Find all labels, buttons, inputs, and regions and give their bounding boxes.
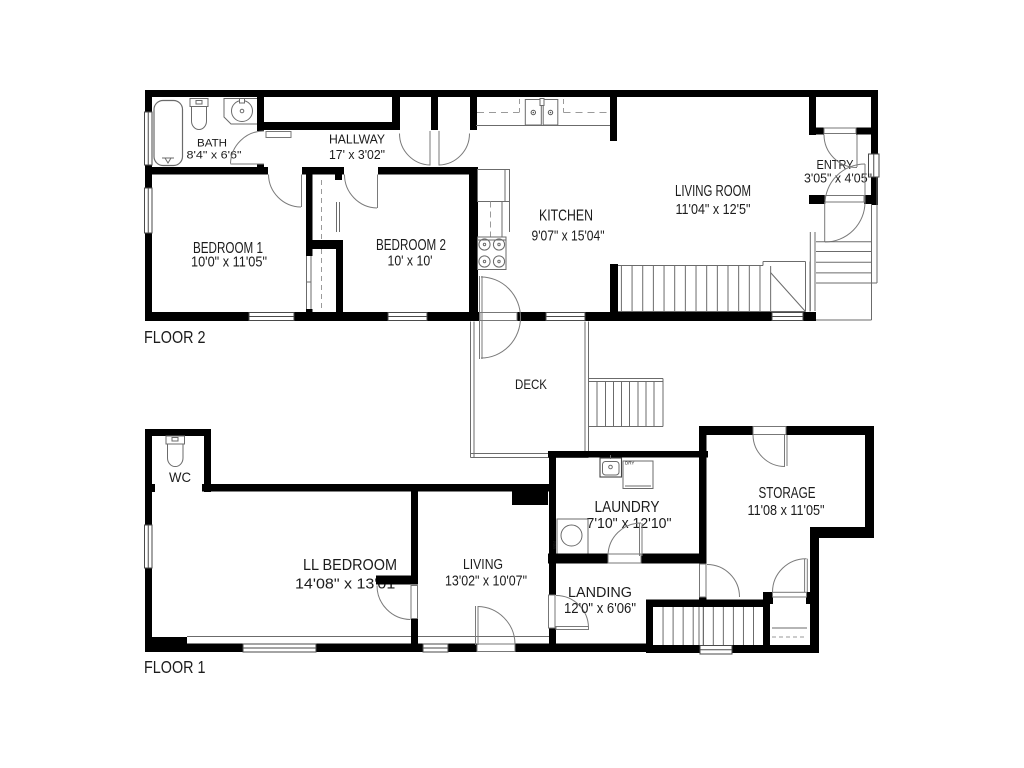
svg-text:FLOOR 1: FLOOR 1 — [144, 657, 206, 677]
svg-text:9'07" x 15'04": 9'07" x 15'04" — [532, 228, 605, 245]
svg-text:7'10" x 12'10": 7'10" x 12'10" — [587, 515, 672, 532]
svg-text:3'05" x 4'05": 3'05" x 4'05" — [804, 172, 872, 186]
svg-text:DRY: DRY — [625, 461, 634, 466]
svg-text:LIVING: LIVING — [463, 557, 503, 573]
svg-text:STORAGE: STORAGE — [759, 485, 816, 502]
svg-text:LL BEDROOM: LL BEDROOM — [303, 557, 397, 574]
svg-text:10'0" x 11'05": 10'0" x 11'05" — [191, 254, 267, 271]
svg-text:KITCHEN: KITCHEN — [539, 208, 593, 225]
svg-text:HALLWAY: HALLWAY — [329, 132, 385, 147]
svg-text:FLOOR 2: FLOOR 2 — [144, 327, 206, 347]
svg-text:LIVING ROOM: LIVING ROOM — [675, 183, 751, 200]
svg-text:17' x 3'02": 17' x 3'02" — [329, 147, 385, 162]
svg-text:11'08 x 11'05": 11'08 x 11'05" — [748, 502, 825, 519]
svg-text:BEDROOM 2: BEDROOM 2 — [376, 237, 446, 254]
svg-text:13'02" x 10'07": 13'02" x 10'07" — [445, 574, 527, 590]
svg-text:DECK: DECK — [515, 376, 548, 392]
svg-text:12'0" x 6'06": 12'0" x 6'06" — [564, 601, 636, 617]
svg-text:11'04" x 12'5": 11'04" x 12'5" — [676, 201, 751, 218]
svg-text:10' x 10': 10' x 10' — [388, 253, 433, 270]
svg-text:BATH: BATH — [197, 138, 227, 150]
svg-text:LANDING: LANDING — [568, 585, 632, 601]
svg-text:LAUNDRY: LAUNDRY — [595, 499, 660, 516]
svg-text:WC: WC — [169, 469, 191, 485]
svg-text:WM: WM — [552, 541, 557, 549]
